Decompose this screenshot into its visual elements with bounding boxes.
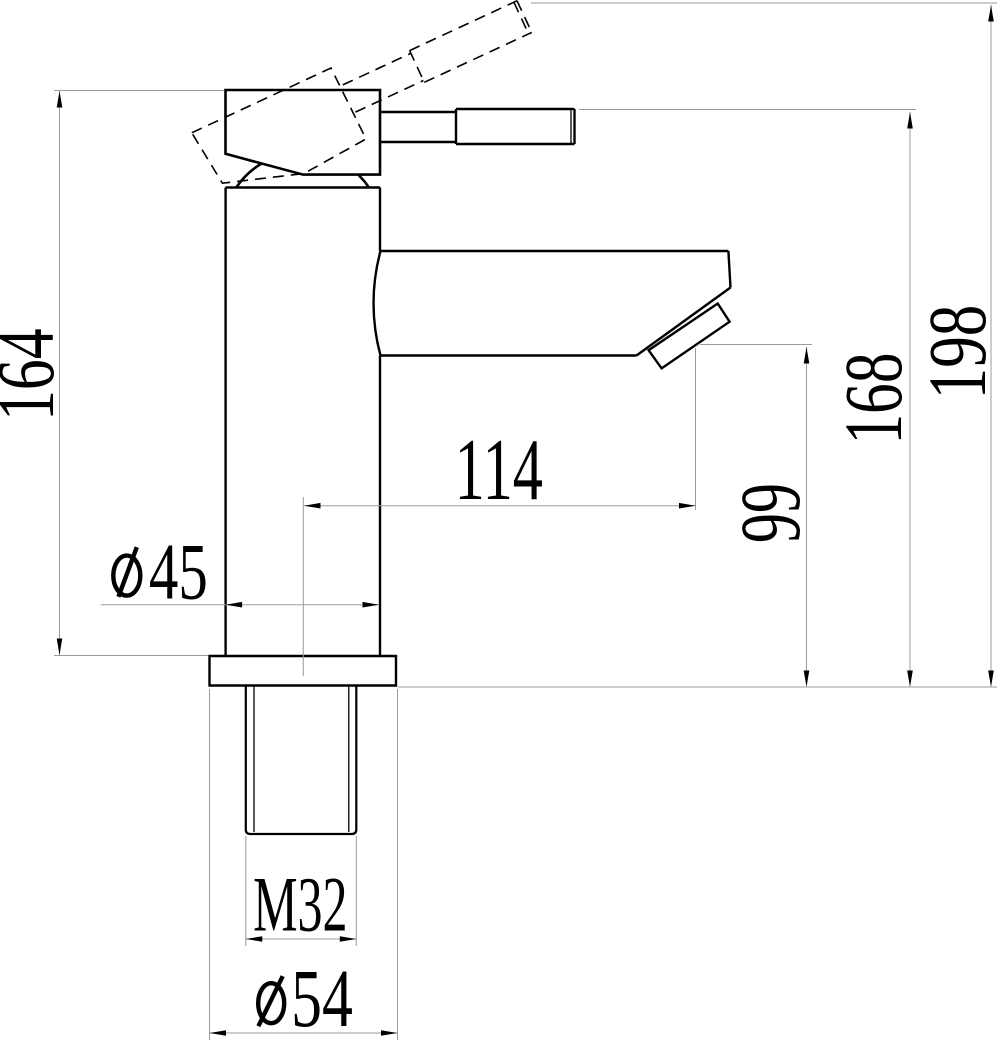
svg-text:168: 168 xyxy=(827,353,919,445)
svg-text:99: 99 xyxy=(724,483,819,543)
svg-text:164: 164 xyxy=(0,328,71,420)
svg-text:198: 198 xyxy=(911,305,1000,400)
svg-text:54: 54 xyxy=(291,952,353,1042)
svg-text:114: 114 xyxy=(455,422,543,519)
svg-text:45: 45 xyxy=(149,528,208,617)
svg-text:M32: M32 xyxy=(253,862,347,948)
